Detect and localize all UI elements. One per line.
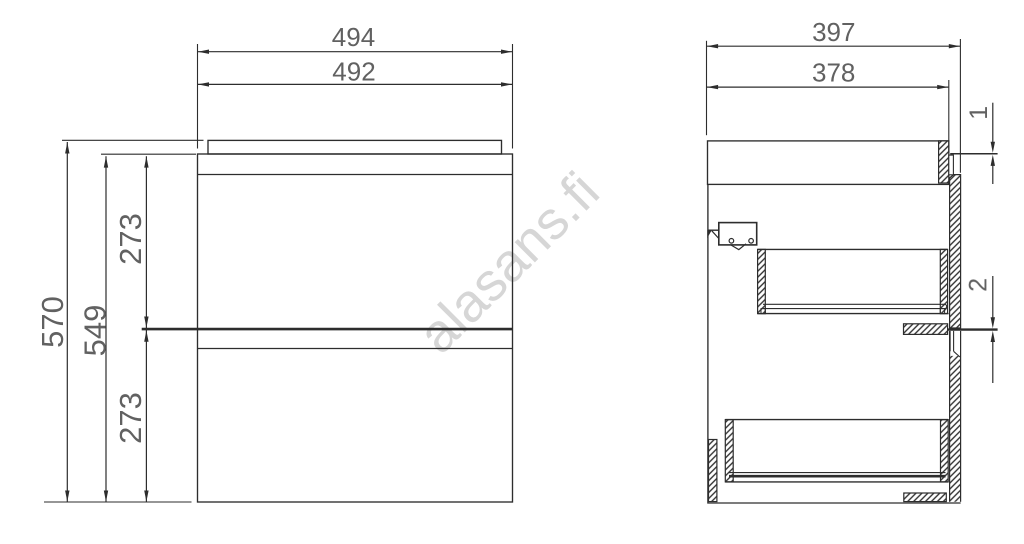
svg-text:378: 378 <box>812 58 855 88</box>
svg-text:273: 273 <box>113 392 148 444</box>
svg-text:492: 492 <box>332 57 375 87</box>
svg-text:570: 570 <box>35 296 70 348</box>
svg-text:549: 549 <box>78 305 113 357</box>
svg-text:397: 397 <box>812 17 855 47</box>
svg-text:1: 1 <box>965 106 993 120</box>
svg-text:273: 273 <box>113 213 148 265</box>
svg-text:2: 2 <box>964 278 992 292</box>
svg-text:494: 494 <box>332 22 375 52</box>
